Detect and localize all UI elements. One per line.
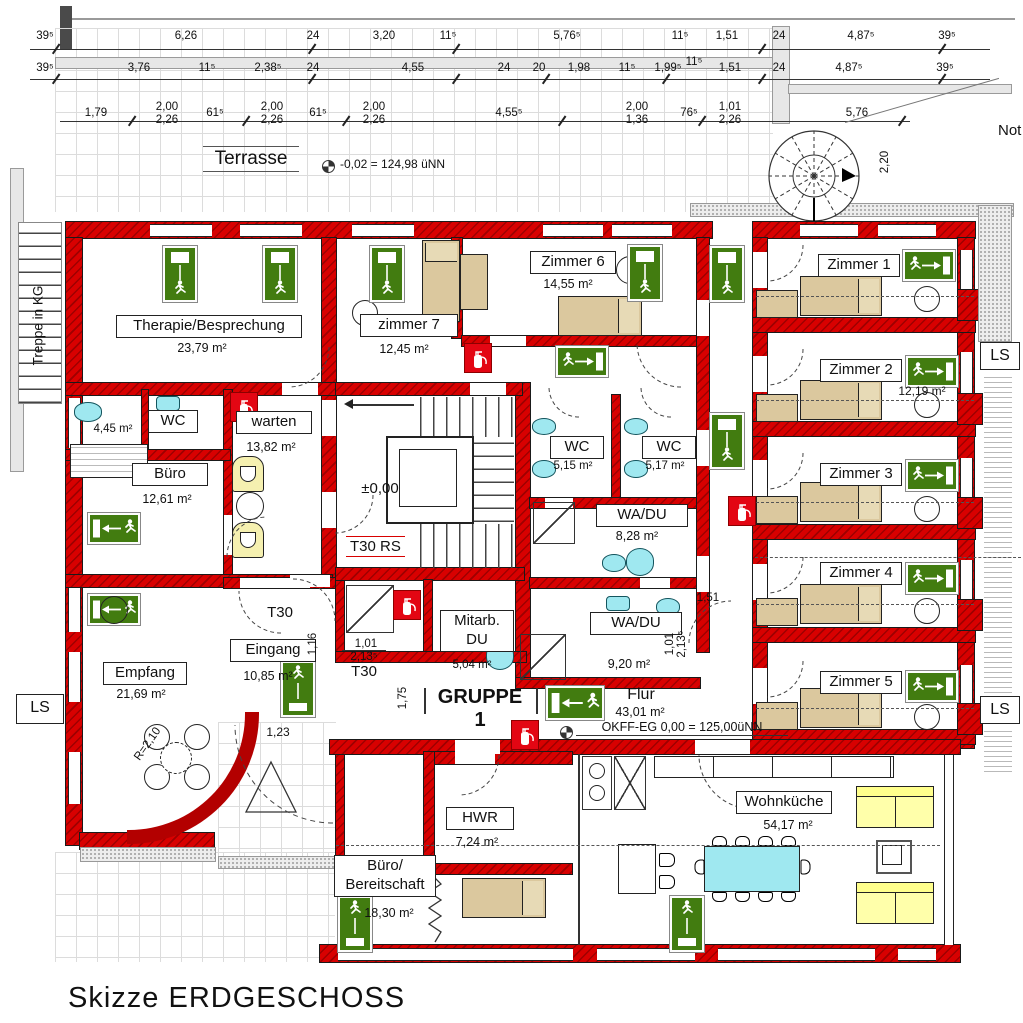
dim-label: 11⁵ [664,30,696,43]
wardrobe [460,254,488,310]
window [543,224,603,237]
dim-label: 24 [489,62,519,75]
room-area-wohnkueche: 54,17 m² [756,818,820,832]
paving-strip [218,856,338,869]
door-arc [688,600,732,644]
shower [346,585,394,633]
sink [606,596,630,611]
dim-separator [342,650,386,651]
dim-label: 3,76 [113,62,165,75]
room-label-zimmer2: Zimmer 2 [820,359,902,382]
stair-steps [472,440,514,522]
dim-label: 4,55⁵ [486,107,532,120]
dim-101b: 1,01 2,13⁵ [664,622,688,666]
exit-sign-icon [670,896,704,952]
chair [712,892,727,902]
section-dash [756,400,974,401]
burner [589,785,605,801]
elevator-car [399,449,457,507]
window [878,224,936,237]
burner [589,763,605,779]
wall-room-divider [753,422,975,436]
exit-sign-icon [546,686,604,720]
door-arc [636,342,682,388]
chair [695,860,705,875]
dim-label: 2,00 2,26 [352,101,396,126]
dim-label: 24 [764,62,794,75]
sink [624,418,648,435]
door-arc [288,346,330,388]
stair-steps [420,397,514,437]
sign-marker-circle [100,596,128,624]
wall-inner [336,740,344,862]
dim-line-1 [30,49,990,50]
room-label-zimmer3: Zimmer 3 [820,463,902,486]
door-gap [753,252,767,288]
room-area-wadu-a: 8,28 m² [606,529,668,543]
nightstand [756,394,798,422]
door-gap [640,578,670,588]
dim-label: 61⁵ [196,107,234,120]
dim-label: 4,87⁵ [834,30,888,43]
door-gap [470,383,506,395]
door-gap [697,556,709,592]
section-dash [756,296,974,297]
door-gap [753,668,767,704]
exit-sign-icon [710,246,744,302]
sofa [856,786,934,828]
table-round [914,598,940,624]
chair [659,875,675,889]
stair-steps [420,524,514,568]
dim-116: 1,16 [307,627,319,661]
door-arc [766,244,804,282]
page-title: Skizze ERDGESCHOSS [68,982,405,1015]
t30rs-label: T30 RS [346,536,405,557]
dim-label: 24 [764,30,794,43]
exit-sign-icon [710,413,744,469]
dim-label: 1,01 2,26 [708,101,752,126]
dim-label: 1,79 [74,107,118,120]
dim-stair-width: 2,20 [879,145,891,179]
window [150,224,212,237]
exit-sign-icon [556,346,608,377]
dim-label: 24 [298,30,328,43]
room-area-empfang: 21,69 m² [110,687,172,701]
window [68,752,81,804]
dim-label: 11⁵ [432,30,464,43]
dim-label: 1,51 [706,30,748,43]
table-round [160,742,192,774]
dim-label: 39⁵ [28,30,62,43]
room-label-empfang: Empfang [103,662,187,685]
wall-inner [530,578,700,588]
fire-extinguisher-icon [464,343,492,373]
window [68,652,81,702]
bed [462,878,546,918]
room-label-wadu-a: WA/DU [596,504,688,527]
window [240,224,302,237]
fire-extinguisher-icon [728,496,756,526]
exit-sign-icon [906,356,958,387]
room-area-wc-b: 5,15 m² [548,460,598,472]
room-area-wadu-b: 9,20 m² [596,657,662,671]
window-band [944,755,954,945]
wall-room-divider [753,318,975,332]
exit-sign-icon [628,245,662,301]
exit-sign-icon [903,250,955,281]
separator [536,688,538,714]
exit-sign-icon [906,563,958,594]
door-arc [458,754,500,796]
dim-label: 6,26 [160,30,212,43]
door-gap [322,400,336,436]
t30-label-a: T30 [258,604,302,621]
wall-top-right [753,222,975,238]
stove [582,756,612,810]
nightstand [756,290,798,318]
window [800,224,858,237]
toilet [602,554,626,572]
sofa [856,882,934,924]
kitchen-counter [654,756,894,778]
table-round [914,286,940,312]
chair [781,892,796,902]
basin-round [626,548,654,576]
door-arc [226,516,268,558]
door-gap [753,356,767,392]
door-gap [695,740,750,754]
dim-label: 4,87⁵ [822,62,876,75]
section-dash [756,604,974,605]
wohnkueche-boundary-line [578,754,580,945]
room-label-zimmer7: zimmer 7 [360,314,458,337]
window [68,588,81,632]
paving-strip [978,205,1012,342]
separator [424,688,426,714]
shower [520,634,566,680]
room-area-therapie: 23,79 m² [154,341,250,355]
window-band [898,948,936,961]
room-label-wc-a: WC [148,410,198,433]
room-label-mitarb: Mitarb. DU [440,610,514,652]
room-label-zimmer1: Zimmer 1 [818,254,900,277]
wall-inner [424,580,432,660]
dim-label: 39⁵ [930,30,964,43]
room-label-therapie: Therapie/Besprechung [116,315,302,338]
door-arc [766,452,804,490]
table-round [914,496,940,522]
slope-hatch [984,375,1012,693]
paving-strip [80,847,216,862]
room-area-wc-a: 4,45 m² [84,423,142,435]
treppe-label: Treppe in KG [31,251,46,401]
side-table-top [882,845,902,865]
slope-hatch [984,730,1012,772]
gruppe-label: GRUPPE 1 [430,686,530,732]
terrace-edge-line [60,18,1015,20]
room-area-mitarb: 5,04 m² [444,659,500,671]
wall-inner [336,568,524,580]
dim-label: 3,20 [358,30,410,43]
dim-label: 1,51 [709,62,751,75]
door-arc [548,386,580,418]
room-area-zimmer7: 12,45 m² [362,342,446,356]
dim-label: 20 [524,62,554,75]
exit-sign-icon [370,246,404,302]
dim-label: 2,00 1,36 [615,101,659,126]
window-sill [958,394,982,424]
dim-label: 39⁵ [28,62,62,75]
chair [758,892,773,902]
room-label-flur: Flur [616,686,666,704]
dim-label: 4,55 [387,62,439,75]
level-zero-label: ±0,00 [350,480,410,497]
dim-label: 2,00 2,26 [250,101,294,126]
dim-label: 39⁵ [928,62,962,75]
spiral-stair-icon [766,128,862,224]
toilet [74,402,102,422]
door-arc [334,494,374,534]
window-band [338,948,573,961]
room-label-buero: Büro [132,463,208,486]
stair-arrow-head [344,399,353,409]
room-label-bereitschaft: Büro/ Bereitschaft [334,855,436,897]
door-gap [697,300,709,336]
ls-box-right-top: LS [980,342,1020,370]
room-area-warten: 13,82 m² [240,440,302,454]
window [612,224,672,237]
nightstand [756,496,798,524]
dim-label: 1,99⁵ [644,62,692,75]
room-label-wc-c: WC [642,436,696,459]
dim-label: 1,98 [556,62,602,75]
desk [618,844,656,894]
dim-label: 2,38⁵ [240,62,296,75]
room-area-flur: 43,01 m² [606,705,674,719]
terrace-band-right [788,84,1012,94]
room-area-eingang: 10,85 m² [236,669,300,683]
exit-sign-icon [906,460,958,491]
sink [156,396,180,411]
room-label-wc-b: WC [550,436,604,459]
dim-123: 1,23 [256,726,300,739]
wall-room-divider [753,628,975,642]
dim-door: 2,13⁵ [342,651,386,664]
sink-unit [614,756,646,810]
dim-151: 1,51 [686,592,730,605]
chair [659,853,675,867]
room-label-zimmer5: Zimmer 5 [820,671,902,694]
door-gap [490,336,526,346]
level-mark-icon [322,160,335,173]
room-area-hwr: 7,24 m² [450,835,504,849]
dim-label: 5,76⁵ [540,30,594,43]
dim-door: 1,01 [344,638,388,651]
dim-line-2 [30,79,990,80]
room-area-zimmer6: 14,55 m² [532,277,604,291]
dim-label: 61⁵ [299,107,337,120]
door-gap [753,460,767,496]
exit-sign-icon [263,246,297,302]
room-area-bereitschaft: 18,30 m² [358,906,420,920]
room-label-warten: warten [236,411,312,434]
wall-inner [336,578,344,655]
exit-sign-icon [906,671,958,702]
door-arc [640,386,672,418]
floor-plan: 39⁵ 6,26 24 3,20 11⁵ 5,76⁵ 11⁵ 1,51 24 4… [0,0,1023,1023]
window-band [718,948,875,961]
section-line [336,845,940,846]
ls-box-left: LS [16,694,64,724]
exit-sign-icon [338,896,372,952]
dim-label: 11⁵ [611,62,643,75]
terrace-label: Terrasse [203,146,299,172]
chair [735,892,750,902]
terrace-level: -0,02 = 124,98 üNN [340,158,480,171]
dim-label: 24 [298,62,328,75]
room-area-buero: 12,61 m² [136,492,198,506]
t30-label-b: T30 [342,663,386,680]
stair-arrow-line [352,404,414,406]
chair [801,860,811,875]
exit-sign-icon [163,246,197,302]
note-label: Not [998,122,1021,139]
chair-round [184,724,210,750]
dim-label: 76⁵ [670,107,708,120]
section-dash [756,502,974,503]
room-label-wohnkueche: Wohnküche [736,791,832,814]
dim-175: 1,75 [397,681,409,715]
section-dash [756,708,974,709]
room-area-zimmer2: 12,19 m² [893,384,951,398]
dining-table [704,846,800,892]
window [352,224,414,237]
room-label-hwr: HWR [446,807,514,830]
room-area-wc-c: 5,17 m² [640,460,690,472]
dim-label: 2,00 2,26 [145,101,189,126]
exit-sign-icon [88,513,140,544]
shower [533,502,575,544]
dim-label: 11⁵ [191,62,223,75]
door-arc [766,660,804,698]
level-mark-icon [560,726,573,739]
room-label-zimmer6: Zimmer 6 [530,251,616,274]
armchair [232,456,264,492]
bed [422,240,460,322]
fire-extinguisher-icon [393,590,421,620]
room-label-zimmer4: Zimmer 4 [820,562,902,585]
door-arc [766,556,804,594]
wall-inner [612,395,620,500]
door-arc [766,348,804,386]
wall-hwr [424,864,572,874]
door-gap [697,430,709,466]
sink [532,418,556,435]
ls-box-right-bottom: LS [980,696,1020,724]
okff-label: OKFF-EG 0,00 = 125,00üNN [576,720,788,736]
wall-room-divider [753,525,975,539]
nightstand [756,598,798,626]
room-label-eingang: Eingang [230,639,316,662]
door-gap [753,564,767,600]
